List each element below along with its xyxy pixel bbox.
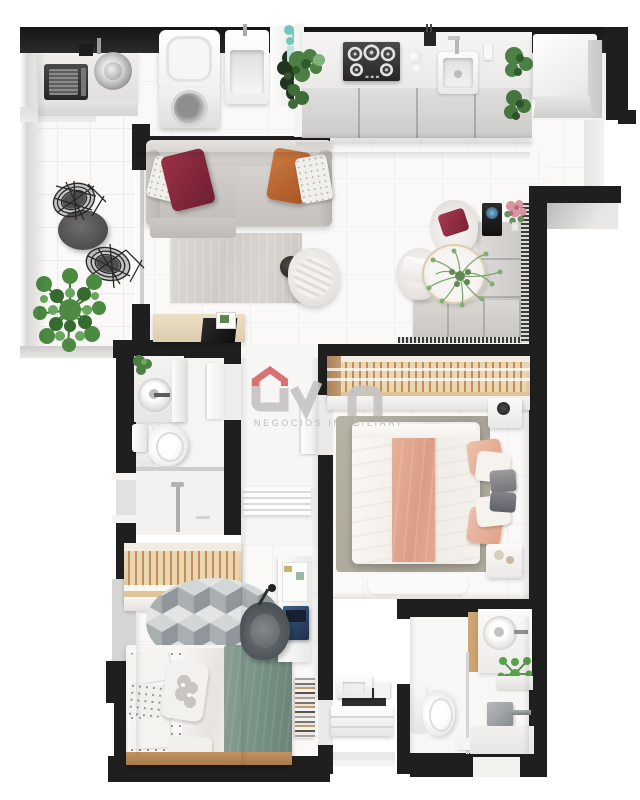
svg-text:NEGOCIOS IMOBILIARI: NEGOCIOS IMOBILIARI bbox=[254, 418, 402, 428]
